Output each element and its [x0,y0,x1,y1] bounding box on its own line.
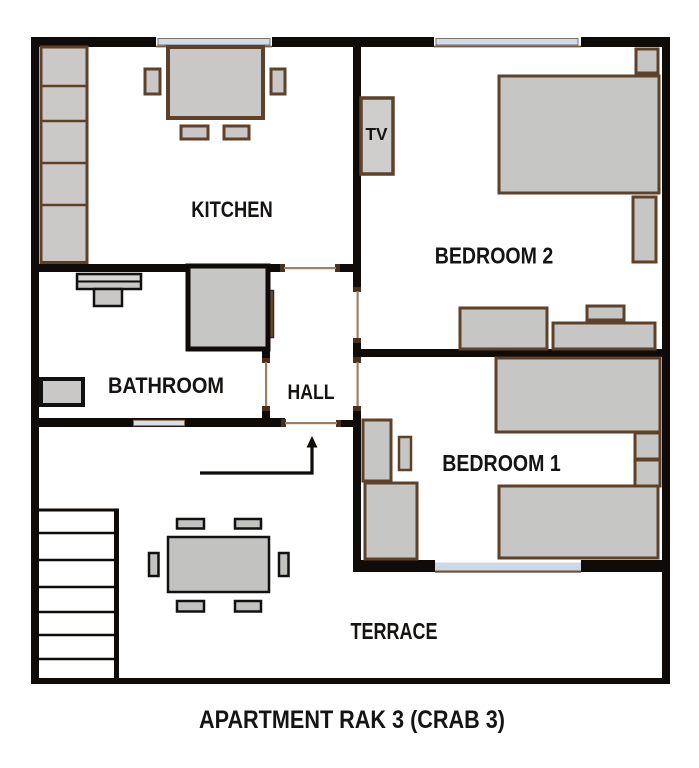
svg-text:HALL: HALL [288,381,335,404]
svg-text:BEDROOM 1: BEDROOM 1 [442,450,561,476]
svg-text:TV: TV [366,124,388,144]
svg-text:APARTMENT RAK 3 (CRAB 3): APARTMENT RAK 3 (CRAB 3) [199,706,505,734]
svg-text:BATHROOM: BATHROOM [108,373,224,398]
svg-text:TERRACE: TERRACE [351,618,438,644]
svg-text:BEDROOM 2: BEDROOM 2 [435,243,554,269]
svg-text:KITCHEN: KITCHEN [191,197,273,222]
